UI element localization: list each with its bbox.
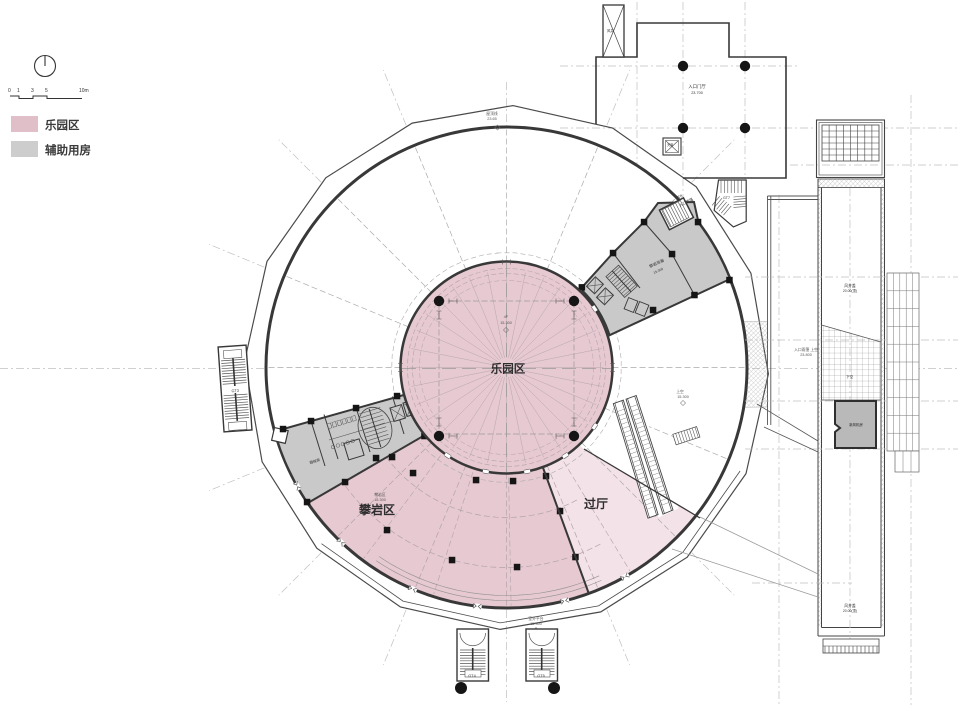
svg-text:20.00(顶): 20.00(顶) bbox=[843, 609, 857, 613]
svg-text:3: 3 bbox=[31, 88, 34, 94]
svg-text:风井盖: 风井盖 bbox=[844, 283, 856, 288]
svg-text:攀岩区: 攀岩区 bbox=[359, 502, 395, 517]
svg-text:风井盖: 风井盖 bbox=[844, 603, 856, 608]
svg-text:GT5: GT5 bbox=[537, 674, 544, 678]
svg-text:15.300: 15.300 bbox=[500, 321, 512, 325]
svg-text:1: 1 bbox=[17, 88, 20, 94]
svg-text:风井: 风井 bbox=[607, 28, 614, 33]
svg-text:0: 0 bbox=[8, 88, 11, 94]
svg-text:新风机房: 新风机房 bbox=[849, 422, 863, 427]
svg-text:天窗: 天窗 bbox=[667, 142, 673, 147]
svg-text:4F: 4F bbox=[504, 315, 509, 319]
svg-text:15.300: 15.300 bbox=[530, 622, 542, 626]
svg-text:过厅: 过厅 bbox=[584, 496, 608, 511]
svg-text:上空: 上空 bbox=[676, 389, 684, 394]
svg-text:屋顶线: 屋顶线 bbox=[486, 111, 498, 116]
svg-text:辅助用房: 辅助用房 bbox=[45, 143, 91, 157]
svg-text:23.65: 23.65 bbox=[487, 117, 497, 121]
svg-text:GT4: GT4 bbox=[468, 674, 475, 678]
svg-text:20.00(顶): 20.00(顶) bbox=[843, 289, 857, 293]
svg-text:乐园区: 乐园区 bbox=[491, 362, 526, 376]
svg-text:23.800: 23.800 bbox=[800, 353, 812, 357]
svg-text:15.300: 15.300 bbox=[677, 395, 689, 399]
svg-text:10m: 10m bbox=[79, 88, 89, 94]
svg-text:5: 5 bbox=[45, 88, 48, 94]
svg-text:15.300: 15.300 bbox=[374, 498, 386, 502]
svg-text:GT3: GT3 bbox=[231, 389, 239, 394]
svg-text:攀岩区: 攀岩区 bbox=[374, 492, 386, 497]
svg-text:入口雨篷 上空: 入口雨篷 上空 bbox=[794, 347, 818, 352]
svg-text:室外平台: 室外平台 bbox=[528, 616, 543, 621]
svg-text:入口门厅: 入口门厅 bbox=[688, 83, 706, 90]
svg-text:乐园区: 乐园区 bbox=[45, 118, 80, 132]
svg-text:GT7: GT7 bbox=[723, 196, 730, 200]
svg-text:23.700: 23.700 bbox=[691, 91, 703, 95]
svg-text:下空: 下空 bbox=[846, 374, 854, 379]
